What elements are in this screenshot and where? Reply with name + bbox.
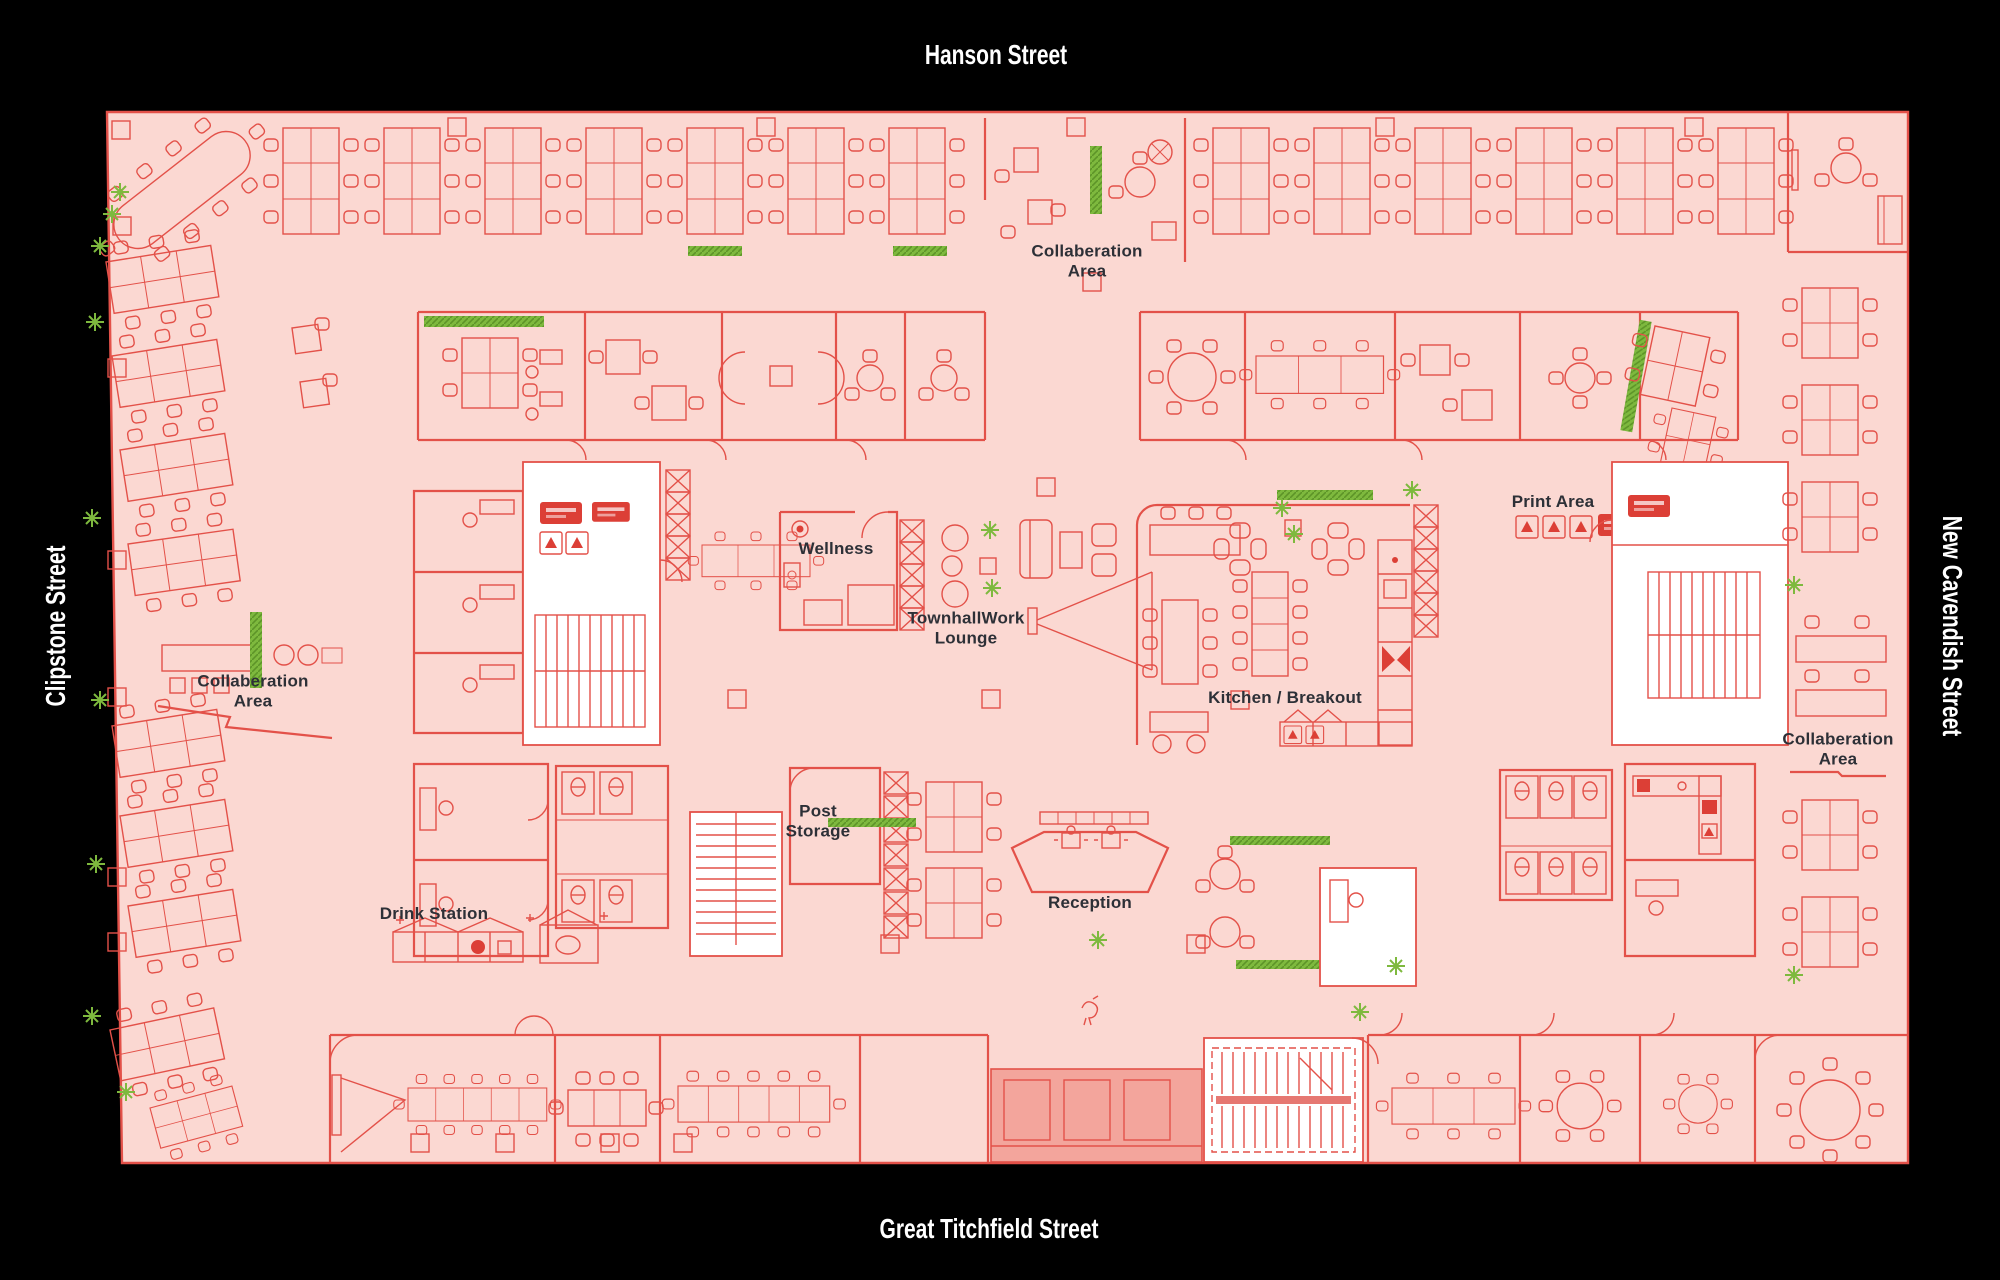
desk-cluster [1497, 128, 1591, 234]
copier-icon [592, 502, 630, 522]
core-right [1590, 462, 1788, 745]
entrance-lobby [991, 1069, 1202, 1162]
bottom-stair-core [1204, 1038, 1378, 1162]
street-label-left: Clipstone Street [40, 545, 72, 706]
hedge-planter [1277, 490, 1373, 500]
desk-cluster [668, 128, 762, 234]
street-label-bottom: Great Titchfield Street [879, 1213, 1098, 1245]
copier-icon [1628, 495, 1670, 517]
label-collaboration-area-top: Collaberation Area [1031, 242, 1142, 283]
desk-cluster [567, 128, 661, 234]
label-reception: Reception [1048, 893, 1132, 913]
hedge-planter [424, 316, 544, 327]
street-label-right: New Cavendish Street [1936, 516, 1968, 737]
label-townhall-lounge: TownhallWork Lounge [908, 609, 1025, 650]
back-office [1320, 868, 1416, 986]
plant-icon [87, 855, 105, 873]
label-wellness: Wellness [799, 539, 874, 559]
hedge-planter [688, 246, 742, 256]
desk-cluster [466, 128, 560, 234]
hedge-planter [893, 246, 947, 256]
plant-icon [83, 509, 101, 527]
hedge-planter [1230, 836, 1330, 845]
copier-icon [540, 502, 582, 524]
desk-cluster [365, 128, 459, 234]
desk-cluster [870, 128, 964, 234]
label-kitchen-breakout: Kitchen / Breakout [1208, 688, 1362, 708]
desk-cluster [1699, 128, 1793, 234]
label-print-area: Print Area [1512, 492, 1595, 512]
plant-icon [83, 1007, 101, 1025]
desk-cluster [1598, 128, 1692, 234]
desk-cluster [1396, 128, 1490, 234]
desk-cluster [769, 128, 863, 234]
desk-cluster [264, 128, 358, 234]
plant-icon [86, 313, 104, 331]
plant-icon [91, 691, 109, 709]
hedge-planter [1090, 146, 1102, 214]
label-post-storage: Post Storage [786, 802, 851, 843]
street-label-top: Hanson Street [925, 39, 1067, 71]
label-collaboration-area-right: Collaberation Area [1782, 730, 1893, 771]
plant-icon [91, 237, 109, 255]
desk-cluster [1295, 128, 1389, 234]
label-collaboration-area-left: Collaberation Area [197, 672, 308, 713]
label-drink-station: Drink Station [380, 904, 488, 924]
floor-plan-stage: Hanson Street Clipstone Street New Caven… [0, 0, 2000, 1280]
desk-cluster [1194, 128, 1288, 234]
